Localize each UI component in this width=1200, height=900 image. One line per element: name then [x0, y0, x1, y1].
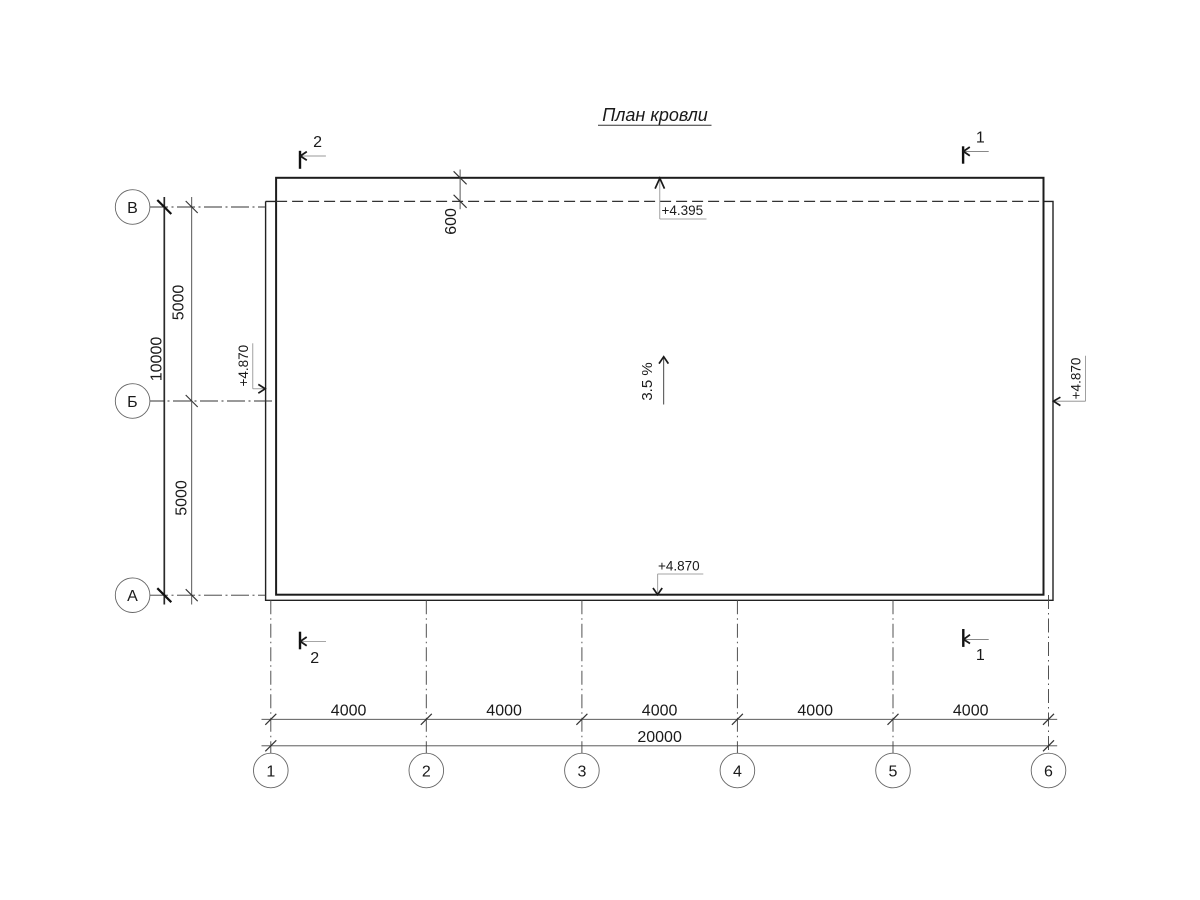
svg-text:4000: 4000 [642, 702, 678, 719]
svg-text:20000: 20000 [637, 729, 682, 746]
svg-text:5000: 5000 [173, 480, 190, 516]
svg-text:+4.870: +4.870 [236, 345, 251, 387]
svg-text:600: 600 [443, 208, 460, 235]
svg-text:4000: 4000 [331, 702, 367, 719]
svg-text:План кровли: План кровли [602, 105, 708, 125]
svg-text:В: В [127, 200, 138, 217]
svg-text:4: 4 [733, 763, 742, 780]
svg-text:4000: 4000 [797, 702, 833, 719]
svg-text:А: А [127, 588, 138, 605]
svg-text:2: 2 [313, 134, 322, 151]
svg-text:3.5 %: 3.5 % [639, 362, 656, 400]
svg-text:+4.870: +4.870 [1068, 358, 1083, 400]
svg-text:4000: 4000 [953, 702, 989, 719]
svg-text:5: 5 [889, 763, 898, 780]
svg-text:+4.870: +4.870 [658, 559, 700, 574]
svg-text:Б: Б [127, 394, 138, 411]
svg-text:+4.395: +4.395 [662, 203, 704, 218]
svg-text:1: 1 [976, 647, 985, 664]
svg-text:3: 3 [577, 763, 586, 780]
svg-text:1: 1 [266, 763, 275, 780]
svg-text:5000: 5000 [170, 285, 187, 321]
svg-text:6: 6 [1044, 763, 1053, 780]
svg-text:1: 1 [976, 130, 985, 147]
svg-text:2: 2 [422, 763, 431, 780]
svg-text:4000: 4000 [486, 702, 522, 719]
svg-text:10000: 10000 [148, 337, 165, 382]
svg-text:2: 2 [310, 650, 319, 667]
